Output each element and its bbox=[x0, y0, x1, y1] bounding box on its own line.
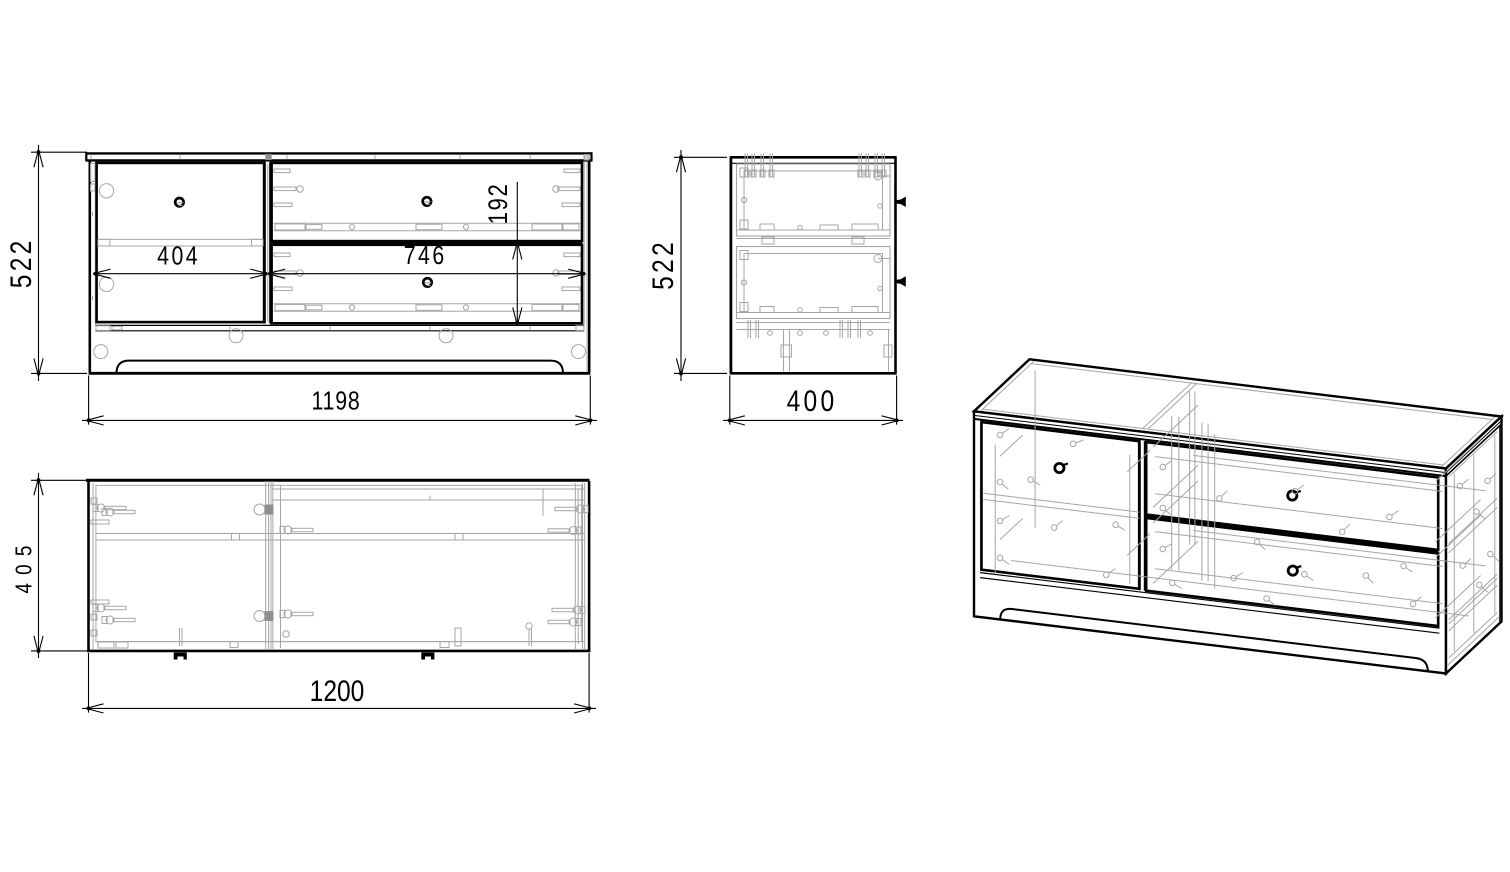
svg-text:192: 192 bbox=[484, 183, 514, 225]
svg-text:746: 746 bbox=[404, 241, 447, 271]
svg-text:522: 522 bbox=[646, 239, 680, 290]
svg-text:404: 404 bbox=[157, 242, 200, 272]
svg-text:405: 405 bbox=[12, 537, 37, 593]
svg-text:522: 522 bbox=[4, 237, 38, 288]
svg-text:1198: 1198 bbox=[311, 387, 360, 417]
svg-text:1200: 1200 bbox=[310, 674, 365, 708]
svg-text:400: 400 bbox=[787, 384, 838, 418]
